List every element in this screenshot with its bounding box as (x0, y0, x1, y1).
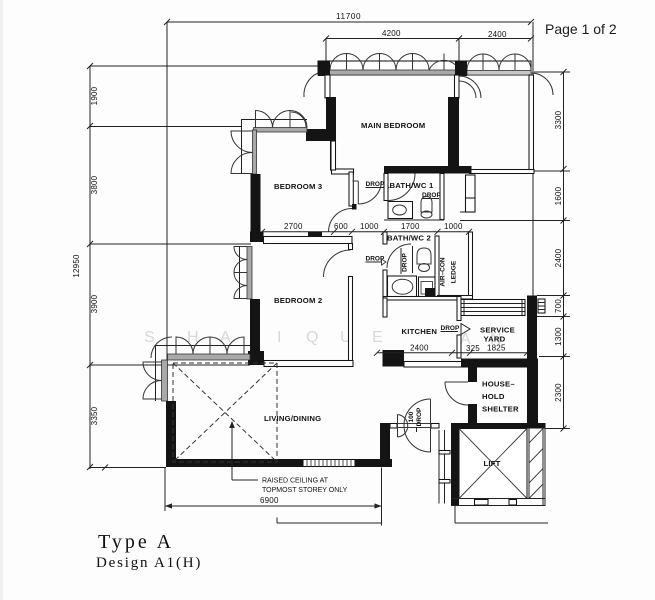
svg-text:HOLD: HOLD (482, 392, 505, 401)
svg-text:1000: 1000 (444, 222, 463, 231)
svg-text:YARD: YARD (484, 335, 506, 344)
svg-text:A: A (220, 329, 231, 346)
svg-text:SERVICE: SERVICE (480, 326, 515, 335)
svg-text:1825: 1825 (487, 344, 506, 353)
svg-text:2400: 2400 (410, 344, 429, 353)
svg-text:12950: 12950 (72, 254, 81, 278)
svg-text:325: 325 (466, 344, 480, 353)
svg-text:100: 100 (408, 411, 415, 422)
svg-text:BEDROOM 2: BEDROOM 2 (274, 296, 322, 305)
svg-text:DROP: DROP (402, 252, 409, 271)
svg-text:3300: 3300 (554, 110, 563, 129)
svg-text:2400: 2400 (488, 30, 507, 39)
svg-text:1000: 1000 (360, 222, 379, 231)
svg-text:700: 700 (554, 299, 563, 313)
svg-text:3800: 3800 (90, 175, 99, 194)
svg-text:LEDGE: LEDGE (451, 260, 458, 283)
svg-text:LIVING/DINING: LIVING/DINING (264, 414, 321, 423)
svg-text:1900: 1900 (90, 86, 99, 105)
svg-text:6900: 6900 (260, 496, 279, 505)
svg-text:LIFT: LIFT (484, 459, 501, 468)
svg-text:Page 1 of 2: Page 1 of 2 (545, 21, 617, 37)
svg-text:BEDROOM 3: BEDROOM 3 (274, 182, 322, 191)
svg-text:BATH/WC 1: BATH/WC 1 (390, 181, 434, 190)
svg-text:11700: 11700 (336, 12, 361, 21)
svg-text:I: I (277, 329, 281, 346)
svg-text:SHELTER: SHELTER (482, 405, 519, 414)
svg-text:AIR–CON: AIR–CON (440, 257, 447, 287)
svg-text:1600: 1600 (554, 186, 563, 205)
svg-text:2400: 2400 (554, 248, 563, 267)
svg-text:DROP: DROP (422, 192, 441, 199)
svg-text:BATH/WC 2: BATH/WC 2 (387, 234, 431, 243)
svg-text:MAIN BEDROOM: MAIN BEDROOM (361, 121, 425, 130)
svg-text:2700: 2700 (284, 222, 303, 231)
svg-text:1700: 1700 (401, 222, 420, 231)
svg-text:DROP: DROP (366, 181, 385, 188)
svg-text:DROP: DROP (416, 407, 423, 426)
svg-text:2300: 2300 (554, 383, 563, 402)
svg-text:RAISED CEILING AT: RAISED CEILING AT (262, 478, 329, 485)
svg-text:KITCHEN: KITCHEN (402, 327, 438, 336)
svg-text:Q: Q (306, 329, 318, 346)
svg-text:S: S (144, 329, 155, 346)
svg-text:3350: 3350 (90, 406, 99, 425)
svg-text:E: E (372, 329, 383, 346)
svg-text:600: 600 (334, 222, 348, 231)
svg-text:HOUSE–: HOUSE– (482, 380, 515, 389)
svg-text:3900: 3900 (90, 294, 99, 313)
svg-text:1300: 1300 (554, 327, 563, 346)
svg-text:DROP: DROP (441, 325, 460, 332)
svg-text:Design A1(H): Design A1(H) (96, 555, 202, 571)
svg-text:4200: 4200 (382, 29, 401, 38)
svg-text:TOPMOST STOREY ONLY: TOPMOST STOREY ONLY (262, 487, 348, 494)
svg-text:Type A: Type A (98, 531, 174, 553)
